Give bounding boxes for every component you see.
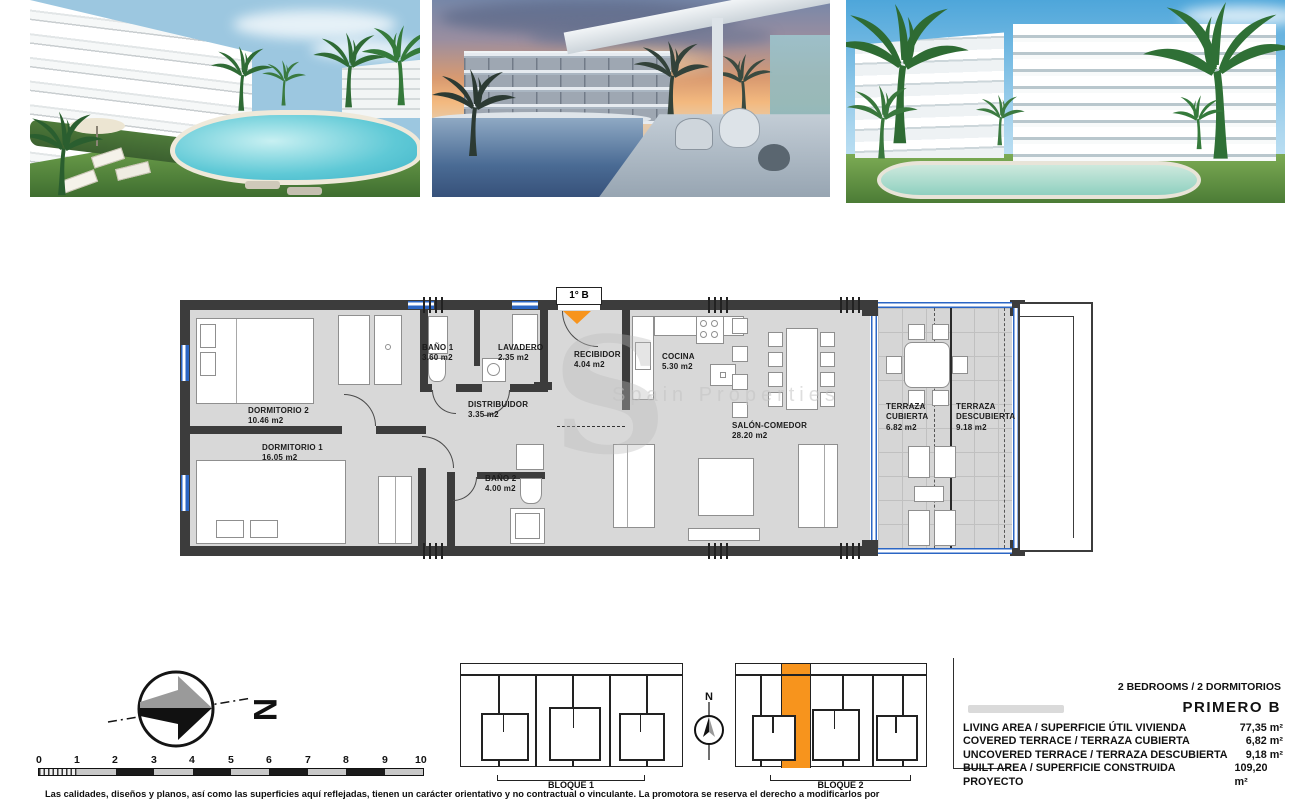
wall <box>600 300 864 310</box>
wall <box>420 384 432 392</box>
glass-wall <box>878 302 1012 308</box>
wardrobe <box>338 315 370 385</box>
grid-mark <box>840 297 860 313</box>
column-post <box>862 540 878 556</box>
terrace-chair <box>932 390 949 406</box>
window <box>181 345 189 381</box>
adjacent-terrace-inner-line <box>1018 316 1074 538</box>
room-name: DORMITORIO 1 <box>262 443 323 452</box>
block-divider <box>609 675 611 766</box>
terrace-chair <box>886 356 902 374</box>
room-area: 16.05 m2 <box>262 453 297 462</box>
scale-tick: 7 <box>305 754 311 766</box>
table-row: UNCOVERED TERRACE / TERRAZA DESCUBIERTA9… <box>963 749 1283 762</box>
chair <box>820 372 835 387</box>
burner <box>711 331 718 338</box>
row-value: 77,35 m² <box>1240 722 1283 735</box>
sofa-line <box>824 445 825 527</box>
unit-name: PRIMERO B <box>1182 699 1281 716</box>
scale-bar: 0 1 2 3 4 5 6 7 8 9 10 <box>38 754 424 780</box>
wall <box>180 546 864 556</box>
toilet <box>520 478 542 504</box>
scale-tick: 9 <box>382 754 388 766</box>
scale-tick: 6 <box>266 754 272 766</box>
side-table <box>914 486 944 502</box>
room-name: DISTRIBUIDOR <box>468 400 528 409</box>
bed-line <box>236 319 237 403</box>
scale-tick: 10 <box>415 754 427 766</box>
scale-segment <box>346 769 384 775</box>
room-name: SALÓN-COMEDOR <box>732 421 807 430</box>
table-row: LIVING AREA / SUPERFICIE ÚTIL VIVIENDA77… <box>963 722 1283 735</box>
room-label-terraza-cubierta: TERRAZA CUBIERTA6.82 m2 <box>886 402 932 433</box>
terrace-chair <box>952 356 968 374</box>
scale-segment <box>193 769 231 775</box>
room-label-terraza-descubierta: TERRAZA DESCUBIERTA9.18 m2 <box>956 402 1008 433</box>
terrace-notch <box>640 715 642 732</box>
terrace-notch <box>573 709 575 728</box>
glass-sliding-door <box>871 316 877 540</box>
render-photo-buildings-pool <box>846 0 1285 203</box>
scale-tick: 0 <box>36 754 42 766</box>
scale-tick: 5 <box>228 754 234 766</box>
room-label-lavadero: LAVADERO2.35 m2 <box>498 343 543 364</box>
pillow <box>200 324 216 348</box>
room-name: RECIBIDOR <box>574 350 621 359</box>
room-area: 4.04 m2 <box>574 360 605 369</box>
cabinet <box>732 318 748 334</box>
room-area: 3.60 m2 <box>422 353 453 362</box>
row-value: 109,20 m² <box>1235 762 1284 789</box>
palm-silhouette-icon <box>623 32 713 122</box>
room-area: 28.20 m2 <box>732 431 767 440</box>
scale-segment <box>154 769 192 775</box>
room-name: TERRAZA CUBIERTA <box>886 402 928 421</box>
terrace-chair <box>675 118 713 150</box>
bathroom-sink <box>516 444 544 470</box>
table-row: BUILT AREA / SUPERFICIE CONSTRUIDA PROYE… <box>963 762 1283 789</box>
scale-tick: 8 <box>343 754 349 766</box>
kitchen-sink <box>635 342 651 370</box>
row-label: LIVING AREA / SUPERFICIE ÚTIL VIVIENDA <box>963 722 1186 735</box>
scale-segment <box>116 769 154 775</box>
window <box>181 475 189 511</box>
row-label: BUILT AREA / SUPERFICIE CONSTRUIDA PROYE… <box>963 762 1235 789</box>
wall <box>180 300 558 310</box>
column-post <box>862 300 878 316</box>
row-value: 9,18 m² <box>1246 749 1283 762</box>
wall <box>456 384 482 392</box>
scale-tick: 1 <box>74 754 80 766</box>
deck-stone <box>287 187 322 195</box>
scale-segment <box>39 769 77 775</box>
terrace-notch <box>834 711 836 729</box>
block-terrace-outline <box>481 713 529 761</box>
dining-table <box>786 328 818 410</box>
bedrooms-line: 2 BEDROOMS / 2 DORMITORIOS <box>1118 681 1281 693</box>
row-label: UNCOVERED TERRACE / TERRAZA DESCUBIERTA <box>963 749 1228 762</box>
key-plan-bloque-2 <box>735 663 927 767</box>
washer-drum <box>487 363 500 376</box>
scale-segment <box>77 769 115 775</box>
row-value: 6,82 m² <box>1246 735 1283 748</box>
open-boundary-dashed <box>557 426 625 427</box>
scale-segment <box>231 769 269 775</box>
room-area: 4.00 m2 <box>485 484 516 493</box>
scale-tick: 2 <box>112 754 118 766</box>
scale-tick: 4 <box>189 754 195 766</box>
terrace-notch <box>895 717 897 733</box>
sofa <box>613 444 655 528</box>
north-compass: N <box>100 660 280 755</box>
pool <box>877 161 1201 199</box>
pillow <box>200 352 216 376</box>
room-name: TERRAZA DESCUBIERTA <box>956 402 1015 421</box>
terrace-notch <box>772 717 774 733</box>
disclaimer-text: Las calidades, diseños y planos, así com… <box>45 789 1195 799</box>
chair <box>820 352 835 367</box>
shower-tray <box>515 513 540 539</box>
room-label-dormitorio-2: DORMITORIO 210.46 m2 <box>248 406 309 427</box>
scale-segment <box>385 769 423 775</box>
sofa <box>798 444 838 528</box>
room-name: COCINA <box>662 352 695 361</box>
grid-mark <box>423 543 443 559</box>
room-label-distribuidor: DISTRIBUIDOR3.35 m2 <box>468 400 528 421</box>
room-area: 2.35 m2 <box>498 353 529 362</box>
palm-tree-icon <box>1170 89 1232 151</box>
pool <box>170 110 420 185</box>
grid-mark <box>708 543 728 559</box>
table-row: COVERED TERRACE / TERRAZA CUBIERTA6,82 m… <box>963 735 1283 748</box>
block-terrace-outline <box>549 707 601 761</box>
room-area: 10.46 m2 <box>248 416 283 425</box>
deck-stone <box>245 181 280 189</box>
small-north-compass: N <box>692 690 726 764</box>
burner <box>700 331 707 338</box>
room-label-cocina: COCINA5.30 m2 <box>662 352 695 373</box>
palm-silhouette-icon <box>432 59 520 159</box>
room-label-bano-2: BAÑO 24.00 m2 <box>485 474 516 495</box>
coffee-table <box>698 458 754 516</box>
chair <box>820 332 835 347</box>
room-area: 3.35 m2 <box>468 410 499 419</box>
sun-lounger <box>934 446 956 478</box>
chair <box>768 392 783 407</box>
room-name: DORMITORIO 2 <box>248 406 309 415</box>
cabinet <box>732 346 748 362</box>
grid-mark <box>423 297 443 313</box>
wall <box>180 300 190 556</box>
window <box>512 301 538 309</box>
north-label: N <box>247 698 280 721</box>
pillow <box>216 520 244 538</box>
glass-wall <box>878 548 1012 554</box>
wall <box>418 468 426 546</box>
cabinet <box>732 374 748 390</box>
chair <box>768 352 783 367</box>
grid-mark <box>840 543 860 559</box>
wardrobe-line <box>395 477 396 543</box>
unit-number-badge: 1° B <box>556 287 602 305</box>
palm-tree-icon <box>969 89 1027 147</box>
room-area: 6.82 m2 <box>886 423 917 432</box>
burner <box>711 320 718 327</box>
block-terrace-outline <box>752 715 796 761</box>
render-photo-sunset-terrace <box>432 0 830 197</box>
chair <box>768 372 783 387</box>
block-terrace-outline <box>876 715 918 761</box>
scale-segment <box>308 769 346 775</box>
wall <box>190 426 342 434</box>
wall <box>474 310 480 366</box>
pillow <box>250 520 278 538</box>
island-detail <box>720 372 726 378</box>
wall <box>622 310 630 410</box>
terrace-chair <box>932 324 949 340</box>
room-label-recibidor: RECIBIDOR4.04 m2 <box>574 350 621 371</box>
room-label-dormitorio-1: DORMITORIO 116.05 m2 <box>262 443 323 464</box>
terrace-chair <box>908 324 925 340</box>
room-label-bano-1: BAÑO 13.60 m2 <box>422 343 453 364</box>
key-plan-bloque-1 <box>460 663 683 767</box>
egg-chair <box>719 108 761 147</box>
wardrobe <box>374 315 402 385</box>
block-terrace-outline <box>619 713 665 761</box>
cabinet <box>732 402 748 418</box>
tv-bench <box>688 528 760 541</box>
sun-lounger <box>934 510 956 546</box>
wall <box>376 426 426 434</box>
room-area: 9.18 m2 <box>956 423 987 432</box>
block-roofline <box>736 674 926 676</box>
palm-tree-icon <box>846 77 921 161</box>
pergola-column <box>712 18 722 126</box>
room-label-salon-comedor: SALÓN-COMEDOR28.20 m2 <box>732 421 807 442</box>
north-label: N <box>705 691 713 703</box>
chair <box>768 332 783 347</box>
terrace-notch <box>503 715 505 732</box>
entrance-marker-icon <box>563 311 591 324</box>
sun-lounger <box>908 446 930 478</box>
scale-bar-segments <box>38 768 424 776</box>
sun-lounger <box>908 510 930 546</box>
room-name: BAÑO 2 <box>485 474 516 483</box>
scale-segment <box>269 769 307 775</box>
room-name: BAÑO 1 <box>422 343 453 352</box>
burner <box>700 320 707 327</box>
room-area: 5.30 m2 <box>662 362 693 371</box>
block-divider <box>872 675 874 766</box>
palm-tree-icon <box>256 55 308 107</box>
sofa-line <box>627 445 628 527</box>
block-terrace-outline <box>812 709 860 761</box>
palm-tree-icon <box>358 16 420 108</box>
chair <box>820 392 835 407</box>
wardrobe-knob <box>385 344 391 350</box>
render-photo-pool-day <box>30 0 420 197</box>
redacted-project-name <box>968 705 1064 713</box>
block-divider <box>535 675 537 766</box>
grid-mark <box>708 297 728 313</box>
palm-tree-icon <box>30 102 107 197</box>
scale-tick: 3 <box>151 754 157 766</box>
wall <box>510 384 548 392</box>
room-name: LAVADERO <box>498 343 543 352</box>
row-label: COVERED TERRACE / TERRAZA CUBIERTA <box>963 735 1190 748</box>
brochure-page: { "photos": [ {"alt": "Daytime render: w… <box>0 0 1315 802</box>
floor-plan: S Spain Properties DORMITORIO 210.46 m2 … <box>180 288 1095 568</box>
decor-vase <box>758 144 790 172</box>
terrace-table <box>904 342 950 388</box>
area-table: LIVING AREA / SUPERFICIE ÚTIL VIVIENDA77… <box>963 722 1283 789</box>
